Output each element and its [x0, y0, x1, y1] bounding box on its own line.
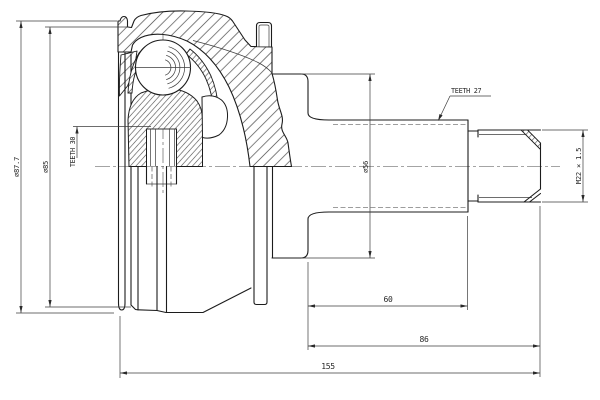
tone-ring	[257, 23, 272, 47]
drawing-canvas: ⌀87.7 ⌀85 TEETH 30 ⌀56	[0, 0, 600, 400]
dimension-dia-groove: ⌀85	[41, 27, 131, 307]
dimension-overall-length: 155	[120, 316, 540, 378]
shaft	[272, 74, 541, 258]
housing-exterior-lower	[119, 167, 268, 313]
label-overall-length: 155	[321, 362, 335, 371]
thread-chamfer-bottom	[524, 189, 541, 202]
label-dia-outer: ⌀87.7	[12, 157, 21, 177]
callout-teeth-outer-spline: TEETH 27	[438, 87, 491, 121]
ball-pocket	[202, 96, 228, 138]
label-thread-spec: M22 × 1.5	[574, 148, 583, 184]
bearing-ball	[136, 40, 192, 95]
boot-lip-bottom	[119, 303, 126, 310]
dimension-dia-shoulder: ⌀56	[301, 74, 375, 258]
dimension-spline-length: 60	[308, 216, 468, 350]
label-dia-groove: ⌀85	[41, 161, 50, 173]
inner-race	[128, 88, 203, 189]
label-spline-length: 60	[383, 295, 393, 304]
thread-chamfer-top	[521, 130, 541, 150]
inner-race-hatched	[128, 88, 203, 166]
dimension-shaft-length: 86	[308, 206, 540, 377]
housing-bottom-profile	[138, 288, 251, 313]
label-teeth-inner-spline: TEETH 30	[69, 137, 77, 168]
dimension-thread: M22 × 1.5	[542, 130, 588, 202]
groove-bottom	[131, 305, 138, 310]
label-teeth-outer-spline: TEETH 27	[451, 87, 482, 95]
shoulder-profile-bottom	[272, 212, 329, 258]
label-shaft-length: 86	[419, 335, 429, 344]
dimension-dia-outer: ⌀87.7	[12, 21, 117, 313]
label-dia-shoulder: ⌀56	[361, 161, 370, 173]
tone-ring-bottom	[254, 302, 267, 305]
cv-joint-technical-drawing: ⌀87.7 ⌀85 TEETH 30 ⌀56	[0, 0, 600, 400]
